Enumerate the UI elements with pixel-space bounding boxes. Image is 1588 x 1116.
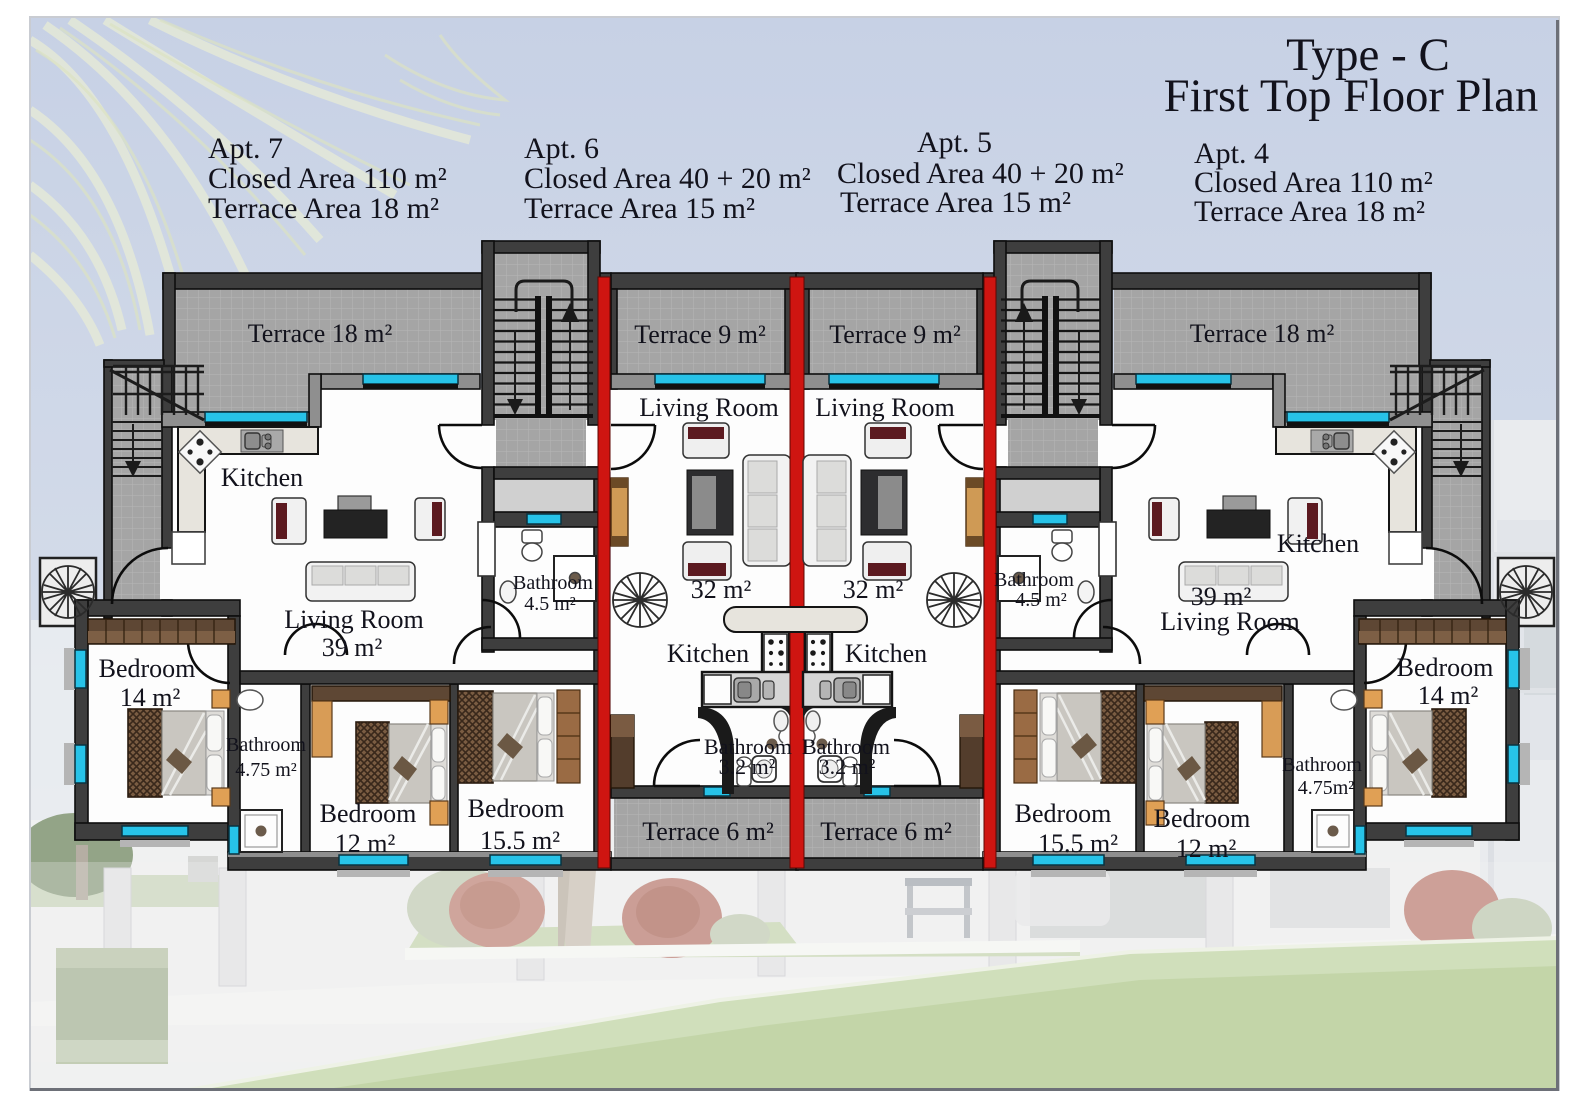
svg-text:Living Room: Living Room <box>815 393 954 422</box>
svg-text:4.75m²: 4.75m² <box>1298 777 1355 799</box>
svg-text:12 m²: 12 m² <box>335 829 396 858</box>
svg-text:Terrace Area 18 m²: Terrace Area 18 m² <box>208 192 439 225</box>
svg-text:Terrace 18 m²: Terrace 18 m² <box>1190 319 1335 348</box>
svg-text:Apt. 7: Apt. 7 <box>208 132 283 165</box>
svg-text:Terrace Area 15 m²: Terrace Area 15 m² <box>524 192 755 225</box>
svg-text:Bedroom: Bedroom <box>320 799 417 828</box>
svg-text:Apt. 6: Apt. 6 <box>524 132 599 165</box>
svg-text:Closed Area 110 m²: Closed Area 110 m² <box>208 162 447 195</box>
svg-text:Kitchen: Kitchen <box>845 639 927 668</box>
svg-text:Terrace 9 m²: Terrace 9 m² <box>634 320 766 349</box>
svg-text:12 m²: 12 m² <box>1176 834 1237 863</box>
svg-text:Terrace Area 15 m²: Terrace Area 15 m² <box>840 186 1071 219</box>
svg-text:Bedroom: Bedroom <box>468 794 565 823</box>
svg-text:3.2 m²: 3.2 m² <box>719 754 776 779</box>
svg-text:4.5 m²: 4.5 m² <box>1015 589 1067 611</box>
svg-text:Terrace 6 m²: Terrace 6 m² <box>642 817 774 846</box>
svg-text:14 m²: 14 m² <box>120 683 181 712</box>
svg-text:39 m²: 39 m² <box>322 633 383 662</box>
svg-text:Living Room: Living Room <box>639 393 778 422</box>
svg-text:Bedroom: Bedroom <box>1397 653 1494 682</box>
svg-text:Bathroom: Bathroom <box>513 572 593 594</box>
svg-text:15.5 m²: 15.5 m² <box>480 826 560 855</box>
svg-text:Bedroom: Bedroom <box>99 654 196 683</box>
svg-text:Living Room: Living Room <box>1160 607 1299 636</box>
svg-text:14 m²: 14 m² <box>1418 681 1479 710</box>
svg-text:Living Room: Living Room <box>284 605 423 634</box>
svg-text:Bathroom: Bathroom <box>226 734 306 756</box>
svg-text:3.2 m²: 3.2 m² <box>819 754 876 779</box>
svg-text:Terrace 9 m²: Terrace 9 m² <box>829 320 961 349</box>
svg-text:Terrace 6 m²: Terrace 6 m² <box>820 817 952 846</box>
svg-text:Terrace 18 m²: Terrace 18 m² <box>248 319 393 348</box>
svg-text:32 m²: 32 m² <box>843 575 904 604</box>
svg-text:First Top Floor Plan: First Top Floor Plan <box>1164 71 1538 122</box>
svg-text:Terrace Area 18 m²: Terrace Area 18 m² <box>1194 195 1425 228</box>
svg-text:Kitchen: Kitchen <box>1277 529 1359 558</box>
svg-text:4.5 m²: 4.5 m² <box>524 593 576 615</box>
svg-text:Kitchen: Kitchen <box>221 463 303 492</box>
svg-text:15.5 m²: 15.5 m² <box>1038 829 1118 858</box>
svg-text:Apt. 5: Apt. 5 <box>917 126 992 159</box>
svg-text:Bedroom: Bedroom <box>1015 799 1112 828</box>
svg-text:Bathroom: Bathroom <box>1282 754 1362 776</box>
svg-text:32 m²: 32 m² <box>691 575 752 604</box>
svg-text:Bedroom: Bedroom <box>1154 804 1251 833</box>
svg-text:Bathroom: Bathroom <box>994 569 1074 591</box>
svg-text:4.75 m²: 4.75 m² <box>235 759 297 781</box>
svg-text:Kitchen: Kitchen <box>667 639 749 668</box>
svg-text:Closed Area 40 + 20 m²: Closed Area 40 + 20 m² <box>524 162 811 195</box>
